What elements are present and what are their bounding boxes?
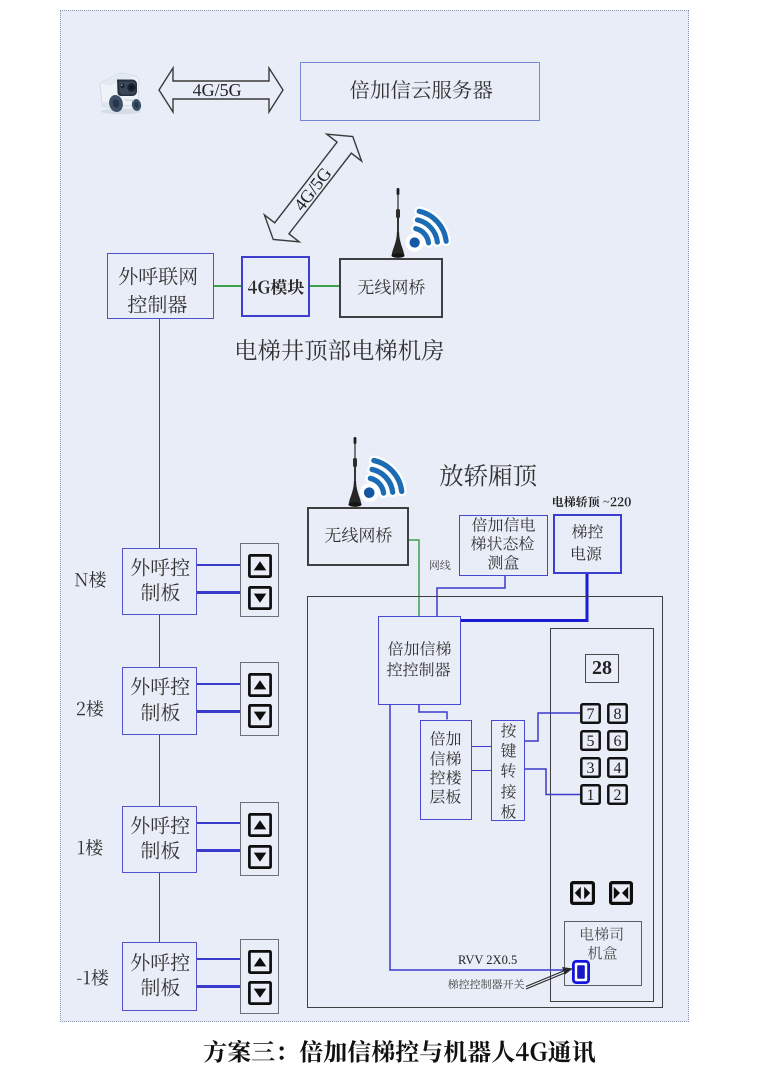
svg-text:8: 8 (614, 705, 622, 722)
svg-text:5: 5 (587, 733, 595, 750)
svg-text:1: 1 (587, 787, 595, 804)
svg-text:6: 6 (614, 733, 622, 750)
svg-text:3: 3 (587, 760, 595, 777)
svg-text:2: 2 (614, 787, 622, 804)
svg-text:7: 7 (587, 705, 595, 722)
svg-text:4: 4 (614, 760, 622, 777)
